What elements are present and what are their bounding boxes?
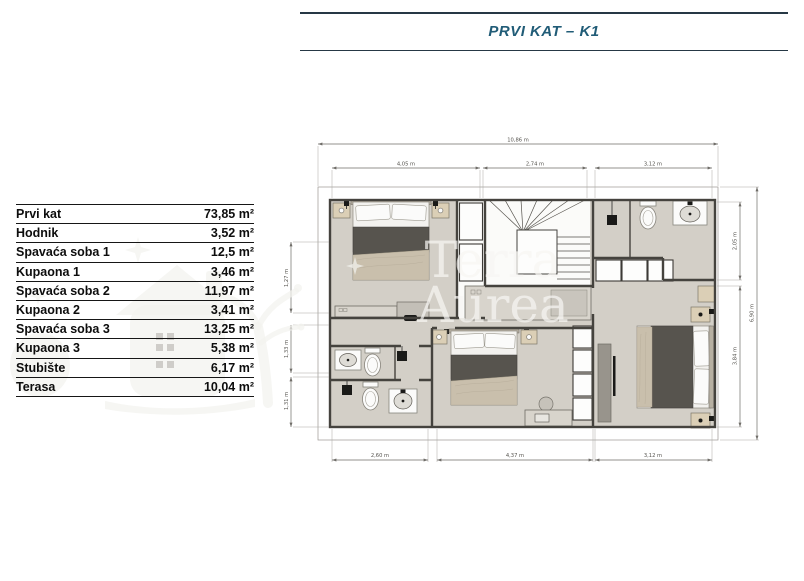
- tv-unit: [598, 344, 611, 422]
- room-area-cell: 5,38 m²: [166, 339, 254, 358]
- corridor-counter: [465, 286, 591, 320]
- room-area-cell: 73,85 m²: [166, 205, 254, 224]
- table-row: Kupaona 35,38 m²: [16, 339, 254, 358]
- table-row: Spavaća soba 211,97 m²: [16, 281, 254, 300]
- bed-double: [351, 201, 431, 281]
- table-row: Prvi kat73,85 m²: [16, 205, 254, 224]
- table-row: Kupaona 23,41 m²: [16, 300, 254, 319]
- room-name-cell: Spavaća soba 1: [16, 243, 166, 262]
- header-rule-bottom: [300, 50, 788, 52]
- sink-icon: [673, 201, 707, 225]
- bed-double: [449, 329, 519, 405]
- room-area-cell: 3,41 m²: [166, 300, 254, 319]
- room-name-cell: Stubište: [16, 358, 166, 377]
- page-title: PRVI KAT – K1: [300, 14, 788, 50]
- dim-label-top-seg1: 4,05 m: [397, 162, 415, 168]
- sink-icon: [389, 389, 417, 413]
- dim-label-right-seg1: 2,05 m: [733, 232, 739, 250]
- dim-label-left-seg3: 1,31 m: [284, 392, 290, 410]
- room-area-cell: 11,97 m²: [166, 281, 254, 300]
- dim-label-top-total: 10,86 m: [507, 138, 529, 144]
- ceiling-lamp-icon: [607, 215, 617, 225]
- dim-label-bottom-seg2: 4,37 m: [506, 453, 524, 459]
- room-area-cell: 6,17 m²: [166, 358, 254, 377]
- closet-row: [596, 260, 673, 281]
- dim-label-top-seg3: 3,12 m: [644, 162, 662, 168]
- room-area-cell: 12,5 m²: [166, 243, 254, 262]
- room-name-cell: Kupaona 1: [16, 262, 166, 281]
- room-name-cell: Kupaona 3: [16, 339, 166, 358]
- room-name-cell: Kupaona 2: [16, 300, 166, 319]
- room-name-cell: Prvi kat: [16, 205, 166, 224]
- toilet-icon: [363, 382, 379, 410]
- tv-icon: [613, 356, 616, 396]
- ceiling-lamp-icon: [397, 351, 407, 361]
- dim-label-right-total: 6,90 m: [750, 304, 756, 322]
- room-name-cell: Hodnik: [16, 224, 166, 243]
- dim-label-left-seg1: 1,27 m: [284, 269, 290, 287]
- dim-label-bottom-seg1: 2,60 m: [371, 453, 389, 459]
- table-row: Spavaća soba 112,5 m²: [16, 243, 254, 262]
- room-name-cell: Terasa: [16, 377, 166, 396]
- room-area-cell: 10,04 m²: [166, 377, 254, 396]
- table-row: Hodnik3,52 m²: [16, 224, 254, 243]
- ceiling-lamp-icon: [342, 385, 352, 395]
- dim-label-bottom-seg3: 3,12 m: [644, 453, 662, 459]
- dim-label-left-seg2: 1,33 m: [284, 340, 290, 358]
- dim-label-top-seg2: 2,74 m: [526, 162, 544, 168]
- table-row: Kupaona 13,46 m²: [16, 262, 254, 281]
- sink-icon: [335, 350, 361, 370]
- toilet-icon: [365, 348, 381, 376]
- dim-label-right-seg2: 3,84 m: [733, 347, 739, 365]
- plan-header: PRVI KAT – K1: [300, 12, 788, 51]
- table-row: Stubište6,17 m²: [16, 358, 254, 377]
- table-row: Terasa10,04 m²: [16, 377, 254, 396]
- room-area-cell: 3,52 m²: [166, 224, 254, 243]
- bed-double: [637, 326, 714, 408]
- floor-plan: 10,86 m 4,05 m 2,74 m 3,12 m 2,60 m 4,37…: [285, 128, 804, 478]
- toilet-icon: [640, 201, 656, 229]
- room-area-cell: 13,25 m²: [166, 320, 254, 339]
- room-name-cell: Spavaća soba 2: [16, 281, 166, 300]
- area-legend-table: Prvi kat73,85 m² Hodnik3,52 m² Spavaća s…: [16, 204, 254, 397]
- table-row: Spavaća soba 313,25 m²: [16, 320, 254, 339]
- room-name-cell: Spavaća soba 3: [16, 320, 166, 339]
- room-area-cell: 3,46 m²: [166, 262, 254, 281]
